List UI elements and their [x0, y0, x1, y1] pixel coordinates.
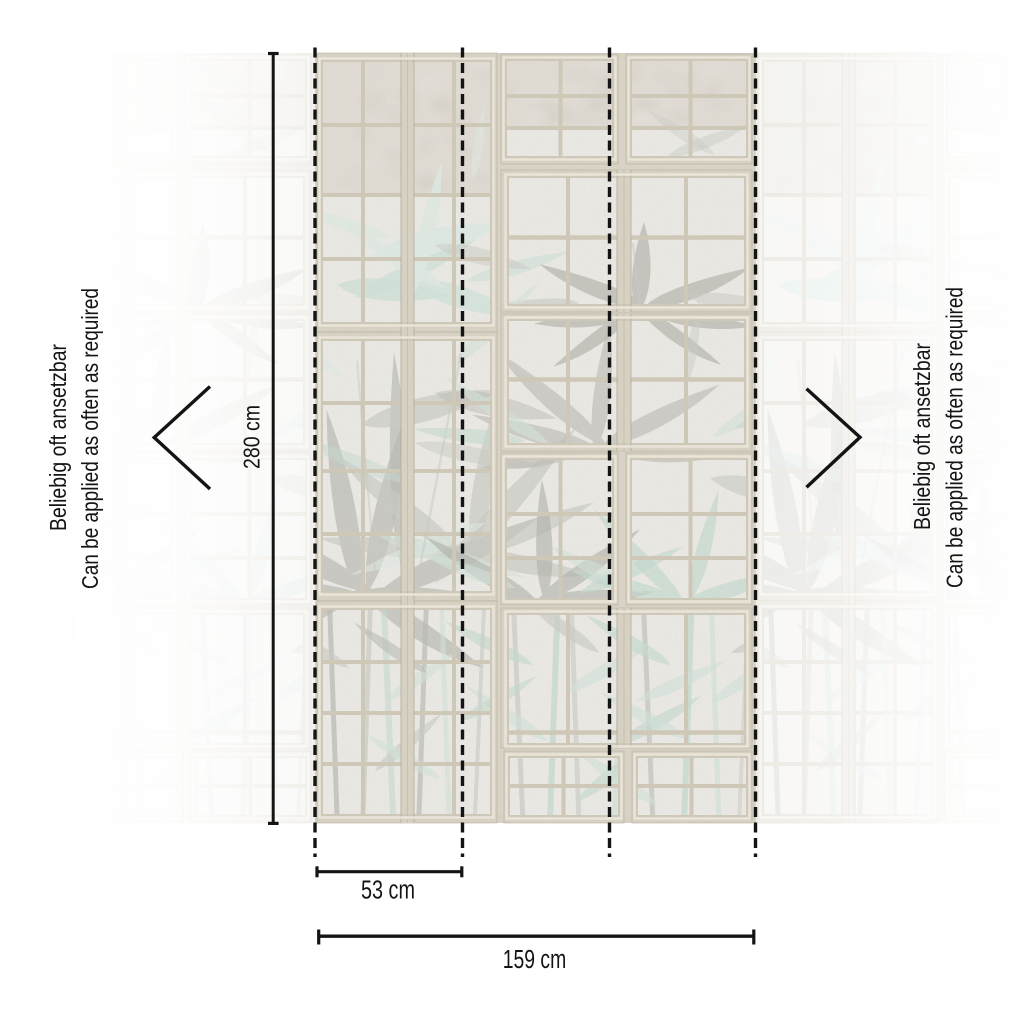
svg-text:Beliebig oft ansetzbar: Beliebig oft ansetzbar — [909, 343, 935, 530]
svg-text:Beliebig oft ansetzbar: Beliebig oft ansetzbar — [45, 344, 71, 531]
svg-text:159 cm: 159 cm — [503, 946, 567, 974]
svg-text:Can be applied as often as req: Can be applied as often as required — [941, 287, 967, 588]
svg-text:Can be applied as often as req: Can be applied as often as required — [77, 288, 103, 589]
svg-text:280 cm: 280 cm — [239, 405, 265, 469]
svg-text:53 cm: 53 cm — [361, 877, 415, 905]
